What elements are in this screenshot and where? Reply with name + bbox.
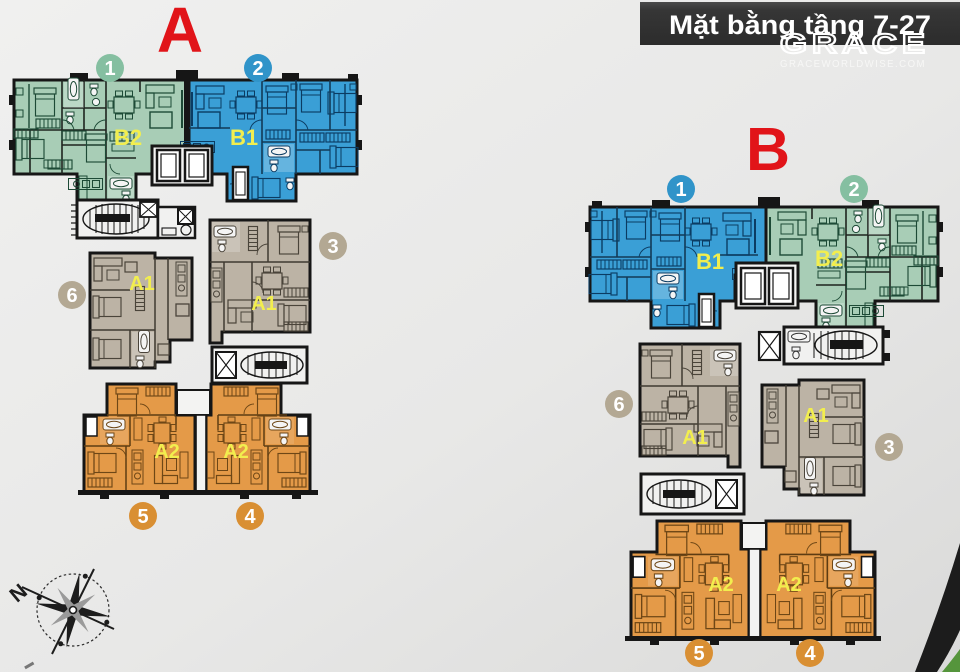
svg-text:A1: A1 — [803, 405, 829, 427]
svg-text:3: 3 — [327, 236, 338, 258]
svg-text:1: 1 — [104, 58, 115, 80]
svg-text:A2: A2 — [708, 574, 734, 596]
svg-text:6: 6 — [66, 285, 77, 307]
svg-text:A1: A1 — [251, 293, 277, 315]
svg-text:5: 5 — [137, 506, 148, 528]
svg-text:3: 3 — [883, 437, 894, 459]
svg-text:5: 5 — [693, 643, 704, 665]
svg-text:B: B — [746, 115, 790, 183]
svg-text:A2: A2 — [223, 441, 249, 463]
svg-text:6: 6 — [613, 394, 624, 416]
svg-text:4: 4 — [804, 643, 816, 665]
svg-text:2: 2 — [252, 58, 263, 80]
svg-text:2: 2 — [848, 179, 859, 201]
svg-text:A: A — [157, 0, 203, 66]
svg-text:1: 1 — [675, 179, 686, 201]
svg-text:A1: A1 — [682, 427, 708, 449]
svg-text:GRACE: GRACE — [780, 28, 930, 59]
svg-text:4: 4 — [244, 506, 256, 528]
svg-text:A2: A2 — [776, 574, 802, 596]
svg-text:A1: A1 — [129, 273, 155, 295]
svg-text:GRACEWORLDWISE.COM: GRACEWORLDWISE.COM — [780, 59, 926, 70]
svg-text:A2: A2 — [154, 441, 180, 463]
svg-text:B1: B1 — [230, 125, 258, 150]
svg-text:B1: B1 — [696, 249, 724, 274]
svg-text:B2: B2 — [815, 246, 843, 271]
svg-text:B2: B2 — [114, 125, 142, 150]
